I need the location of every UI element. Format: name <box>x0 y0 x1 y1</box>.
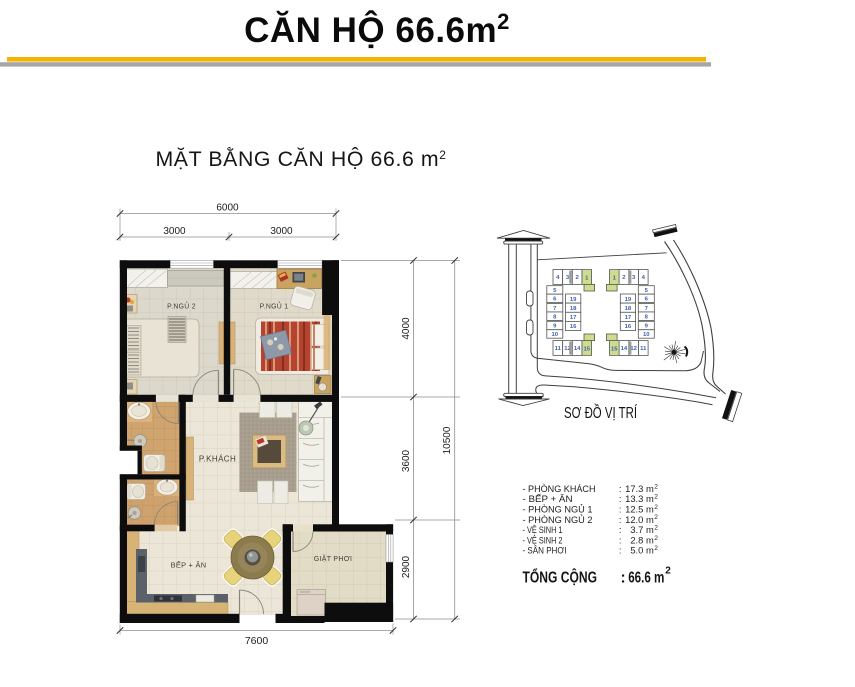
svg-text:3000: 3000 <box>163 226 186 237</box>
svg-text:CĂN HỘ 66.6m2: CĂN HỘ 66.6m2 <box>244 9 510 50</box>
svg-text:17: 17 <box>625 315 632 321</box>
svg-text:11: 11 <box>640 346 647 352</box>
svg-text:16: 16 <box>625 324 632 330</box>
svg-text::: : <box>621 570 626 587</box>
svg-text:4000: 4000 <box>401 317 412 340</box>
svg-text:2: 2 <box>654 494 658 501</box>
svg-text:15: 15 <box>611 346 618 352</box>
svg-text:7600: 7600 <box>245 635 269 647</box>
svg-text::: : <box>619 545 622 556</box>
svg-text:11: 11 <box>555 346 562 352</box>
svg-text:19: 19 <box>625 297 632 303</box>
svg-text:P.NGỦ 2: P.NGỦ 2 <box>167 302 196 311</box>
svg-text:3600: 3600 <box>401 449 412 472</box>
svg-text:2: 2 <box>654 535 658 542</box>
svg-text:MẶT BẰNG CĂN HỘ 66.6 m2: MẶT BẰNG CĂN HỘ 66.6 m2 <box>155 146 446 171</box>
svg-text:14: 14 <box>621 346 628 352</box>
svg-text:2: 2 <box>654 483 658 490</box>
svg-text:16: 16 <box>570 324 577 330</box>
svg-text:10: 10 <box>552 332 559 338</box>
svg-text:BẾP + ĂN: BẾP + ĂN <box>171 560 207 570</box>
svg-text:12: 12 <box>630 346 637 352</box>
svg-text:- SÂN PHƠI: - SÂN PHƠI <box>523 545 567 556</box>
svg-text:14: 14 <box>574 346 581 352</box>
svg-text:3000: 3000 <box>270 226 293 237</box>
svg-text:2: 2 <box>654 514 658 521</box>
svg-text:2: 2 <box>665 566 671 577</box>
svg-text:6000: 6000 <box>216 203 239 214</box>
svg-text:19: 19 <box>570 297 577 303</box>
svg-text:GIẶT PHƠI: GIẶT PHƠI <box>314 554 353 563</box>
svg-text:15: 15 <box>584 346 591 352</box>
svg-text:18: 18 <box>570 306 577 312</box>
svg-text:SƠ ĐỒ VỊ TRÍ: SƠ ĐỒ VỊ TRÍ <box>564 404 638 422</box>
svg-text:5.0 m: 5.0 m <box>630 545 654 556</box>
svg-text:2: 2 <box>654 525 658 532</box>
svg-text:2: 2 <box>654 545 658 552</box>
svg-text:10: 10 <box>643 332 650 338</box>
svg-text:P.NGỦ 1: P.NGỦ 1 <box>260 302 289 311</box>
svg-text:2: 2 <box>654 504 658 511</box>
svg-text:P.KHÁCH: P.KHÁCH <box>199 455 236 464</box>
svg-text:2900: 2900 <box>401 555 412 578</box>
svg-text:66.6 m: 66.6 m <box>628 570 664 587</box>
svg-text:10500: 10500 <box>442 426 453 454</box>
svg-text:18: 18 <box>625 306 632 312</box>
svg-text:17: 17 <box>570 315 577 321</box>
svg-text:TỔNG CỘNG: TỔNG CỘNG <box>523 569 598 587</box>
